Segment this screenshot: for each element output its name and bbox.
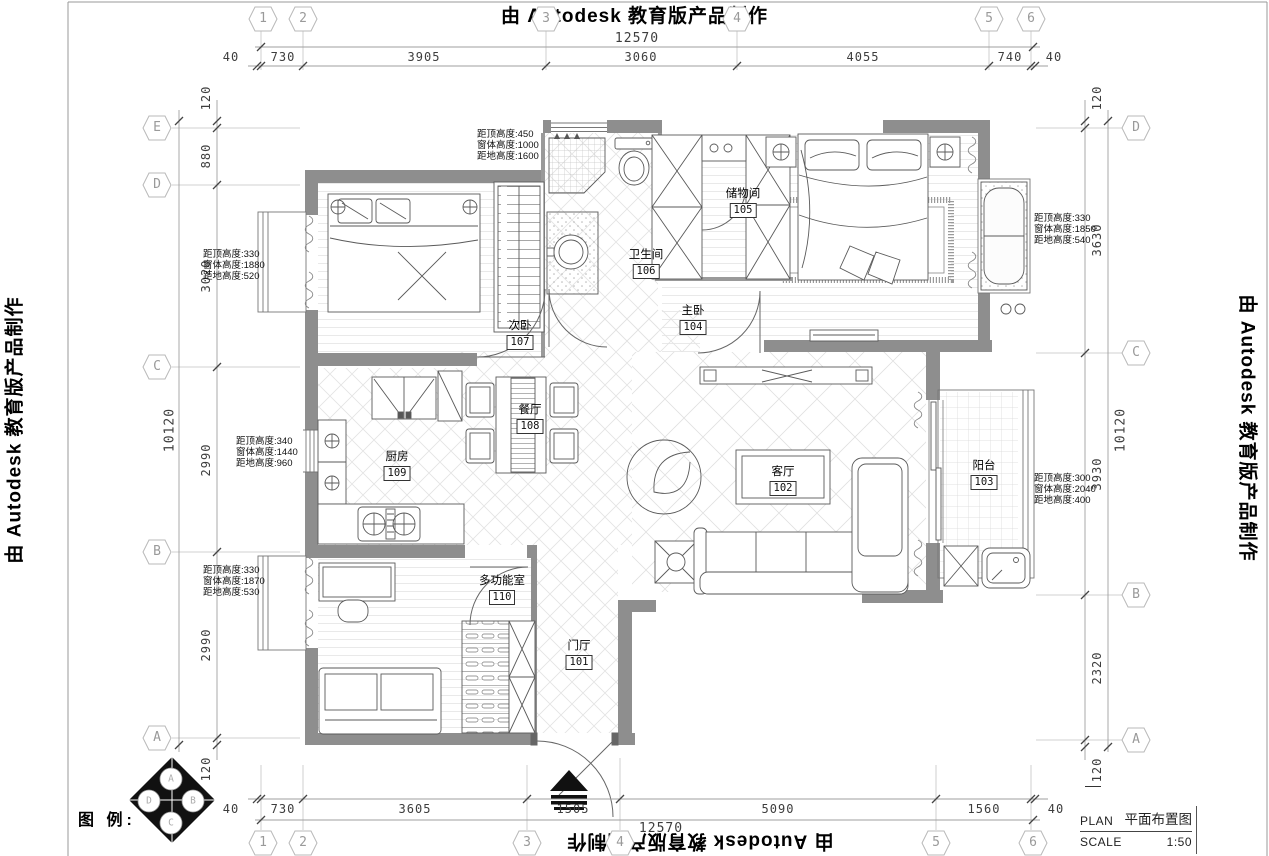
grid-bubble-label: 4 (722, 6, 752, 32)
dim-left-segment-1: 880 (199, 144, 213, 169)
grid-bubble-left-A: A (142, 725, 172, 751)
room-name: 阳台 (973, 457, 996, 473)
dim-left-segment-0: 120 (199, 86, 213, 111)
grid-bubble-label: 2 (288, 830, 318, 856)
grid-bubble-label: C (142, 354, 172, 380)
room-name: 多功能室 (479, 572, 525, 588)
grid-bubble-bottom-5: 5 (921, 830, 951, 856)
grid-bubble-right-B: B (1121, 582, 1151, 608)
room-label-balcony: 阳台 103 (971, 457, 998, 490)
room-label-multifunction-room: 多功能室 110 (479, 572, 525, 605)
dim-right-segment-3: 2320 (1090, 652, 1104, 685)
window-annotation-bathroom: 距顶高度:450 窗体高度:1000 距地高度:1600 (477, 129, 539, 162)
dim-top-segment-4: 4055 (847, 50, 880, 64)
room-number: 109 (384, 466, 411, 481)
window-annotation-left-lower: 距顶高度:330 窗体高度:1870 距地高度:530 (203, 565, 265, 598)
room-number: 104 (680, 320, 707, 335)
annotation-line: 窗体高度:1440 (236, 447, 298, 458)
dim-left-segment-4: 2990 (199, 629, 213, 662)
scale-value: 1:50 (1167, 835, 1192, 849)
grid-bubble-label: A (142, 725, 172, 751)
grid-bubble-label: B (1121, 582, 1151, 608)
grid-bubble-label: D (142, 172, 172, 198)
grid-bubble-top-1: 1 (248, 6, 278, 32)
watermark-left: 由 Autodesk 教育版产品制作 (0, 296, 27, 563)
annotation-line: 距顶高度:330 (1034, 213, 1096, 224)
grid-bubble-label: 3 (531, 6, 561, 32)
grid-bubble-right-D: D (1121, 115, 1151, 141)
annotation-line: 距顶高度:340 (236, 436, 298, 447)
grid-bubble-top-4: 4 (722, 6, 752, 32)
window-annotation-left-upper: 距顶高度:330 窗体高度:1880 距地高度:520 (203, 249, 265, 282)
room-name: 储物间 (726, 185, 761, 201)
annotation-line: 距顶高度:330 (203, 565, 265, 576)
grid-bubble-label: 1 (248, 6, 278, 32)
grid-bubble-right-A: A (1121, 727, 1151, 753)
dim-bottom-segment-3: 1505 (557, 802, 590, 816)
room-number: 110 (489, 590, 516, 605)
dim-top-segment-1: 730 (271, 50, 296, 64)
plan-label: PLAN (1080, 814, 1113, 828)
annotation-line: 距顶高度:300 (1034, 473, 1096, 484)
grid-bubble-left-B: B (142, 539, 172, 565)
room-label-storage: 储物间 105 (726, 185, 761, 218)
watermark-right: 由 Autodesk 教育版产品制作 (1236, 294, 1263, 561)
grid-bubble-label: D (1121, 115, 1151, 141)
grid-bubble-label: 6 (1018, 830, 1048, 856)
annotation-line: 窗体高度:1000 (477, 140, 539, 151)
grid-bubble-label: 4 (605, 830, 635, 856)
window-annotation-kitchen: 距顶高度:340 窗体高度:1440 距地高度:960 (236, 436, 298, 469)
dim-bottom-segment-4: 5090 (762, 802, 795, 816)
grid-bubble-bottom-3: 3 (512, 830, 542, 856)
grid-bubble-label: 5 (921, 830, 951, 856)
plan-title: 平面布置图 (1125, 808, 1193, 828)
room-name: 餐厅 (519, 401, 542, 417)
room-name: 次卧 (509, 317, 532, 333)
compass-letter-bottom: C (168, 818, 174, 829)
grid-bubble-left-D: D (142, 172, 172, 198)
grid-bubble-bottom-1: 1 (248, 830, 278, 856)
grid-bubble-label: 3 (512, 830, 542, 856)
dim-left-overall: 10120 (163, 408, 178, 452)
annotation-line: 距地高度:960 (236, 458, 298, 469)
dim-right-segment-0: 120 (1090, 86, 1104, 111)
room-number: 102 (770, 481, 797, 496)
annotation-line: 窗体高度:2040 (1034, 484, 1096, 495)
annotation-line: 距地高度:400 (1034, 495, 1096, 506)
annotation-line: 距顶高度:450 (477, 129, 539, 140)
grid-bubble-label: 5 (974, 6, 1004, 32)
dim-bottom-segment-2: 3605 (399, 802, 432, 816)
annotation-line: 距顶高度:330 (203, 249, 265, 260)
room-label-living-room: 客厅 102 (770, 463, 797, 496)
grid-bubble-left-C: C (142, 354, 172, 380)
dim-bottom-overall: 12570 (639, 821, 683, 836)
room-number: 101 (566, 655, 593, 670)
compass-letter-left: D (146, 796, 152, 807)
watermark-top: 由 Autodesk 教育版产品制作 (0, 1, 1269, 28)
grid-bubble-right-C: C (1121, 340, 1151, 366)
grid-bubble-top-2: 2 (288, 6, 318, 32)
room-name: 主卧 (682, 302, 705, 318)
room-number: 108 (517, 419, 544, 434)
grid-bubble-top-6: 6 (1016, 6, 1046, 32)
room-number: 106 (633, 264, 660, 279)
dim-bottom-segment-5: 1560 (968, 802, 1001, 816)
room-number: 107 (507, 335, 534, 350)
grid-bubble-top-5: 5 (974, 6, 1004, 32)
dim-top-segment-0: 40 (223, 50, 239, 64)
compass-letter-right: B (190, 796, 196, 807)
floor-plan-sheet: 由 Autodesk 教育版产品制作 由 Autodesk 教育版产品制作 由 … (0, 0, 1269, 856)
title-block: PLAN 平面布置图 SCALE 1:50 (1080, 808, 1192, 849)
dim-bottom-segment-6: 40 (1048, 802, 1064, 816)
room-name: 厨房 (386, 448, 409, 464)
room-label-dining-room: 餐厅 108 (517, 401, 544, 434)
room-number: 105 (730, 203, 757, 218)
floor-plan-drawing (0, 0, 1269, 856)
annotation-line: 距地高度:530 (203, 587, 265, 598)
room-name: 卫生间 (629, 246, 664, 262)
grid-bubble-left-E: E (142, 115, 172, 141)
room-label-second-bedroom: 次卧 107 (507, 317, 534, 350)
annotation-line: 距地高度:1600 (477, 151, 539, 162)
dim-right-segment-4: 120 (1090, 758, 1104, 783)
dim-top-segment-2: 3905 (408, 50, 441, 64)
dim-left-segment-5: 120 (199, 757, 213, 782)
grid-bubble-label: C (1121, 340, 1151, 366)
dim-top-segment-3: 3060 (625, 50, 658, 64)
dim-bottom-segment-1: 730 (271, 802, 296, 816)
window-annotation-master: 距顶高度:330 窗体高度:1850 距地高度:540 (1034, 213, 1096, 246)
grid-bubble-bottom-4: 4 (605, 830, 635, 856)
room-label-entry-hall: 门厅 101 (566, 637, 593, 670)
grid-bubble-label: B (142, 539, 172, 565)
room-name: 客厅 (772, 463, 795, 479)
room-name: 门厅 (568, 637, 591, 653)
room-label-kitchen: 厨房 109 (384, 448, 411, 481)
annotation-line: 距地高度:520 (203, 271, 265, 282)
grid-bubble-top-3: 3 (531, 6, 561, 32)
room-label-bathroom: 卫生间 106 (629, 246, 664, 279)
grid-bubble-bottom-2: 2 (288, 830, 318, 856)
annotation-line: 窗体高度:1850 (1034, 224, 1096, 235)
annotation-line: 窗体高度:1870 (203, 576, 265, 587)
dim-right-overall: 10120 (1114, 408, 1129, 452)
dim-top-segment-6: 40 (1046, 50, 1062, 64)
grid-bubble-label: 6 (1016, 6, 1046, 32)
dim-top-overall: 12570 (615, 31, 659, 46)
room-number: 103 (971, 475, 998, 490)
annotation-line: 距地高度:540 (1034, 235, 1096, 246)
legend-label: 图 例: (78, 806, 136, 830)
grid-bubble-label: 2 (288, 6, 318, 32)
title-block-dash (1085, 786, 1101, 787)
scale-label: SCALE (1080, 835, 1122, 849)
dim-left-segment-3: 2990 (199, 444, 213, 477)
grid-bubble-label: E (142, 115, 172, 141)
title-block-divider (1196, 806, 1197, 854)
window-annotation-balcony: 距顶高度:300 窗体高度:2040 距地高度:400 (1034, 473, 1096, 506)
grid-bubble-label: 1 (248, 830, 278, 856)
dim-top-segment-5: 740 (998, 50, 1023, 64)
room-label-master-bedroom: 主卧 104 (680, 302, 707, 335)
dim-bottom-segment-0: 40 (223, 802, 239, 816)
annotation-line: 窗体高度:1880 (203, 260, 265, 271)
compass-letter-top: A (168, 774, 174, 785)
grid-bubble-bottom-6: 6 (1018, 830, 1048, 856)
grid-bubble-label: A (1121, 727, 1151, 753)
